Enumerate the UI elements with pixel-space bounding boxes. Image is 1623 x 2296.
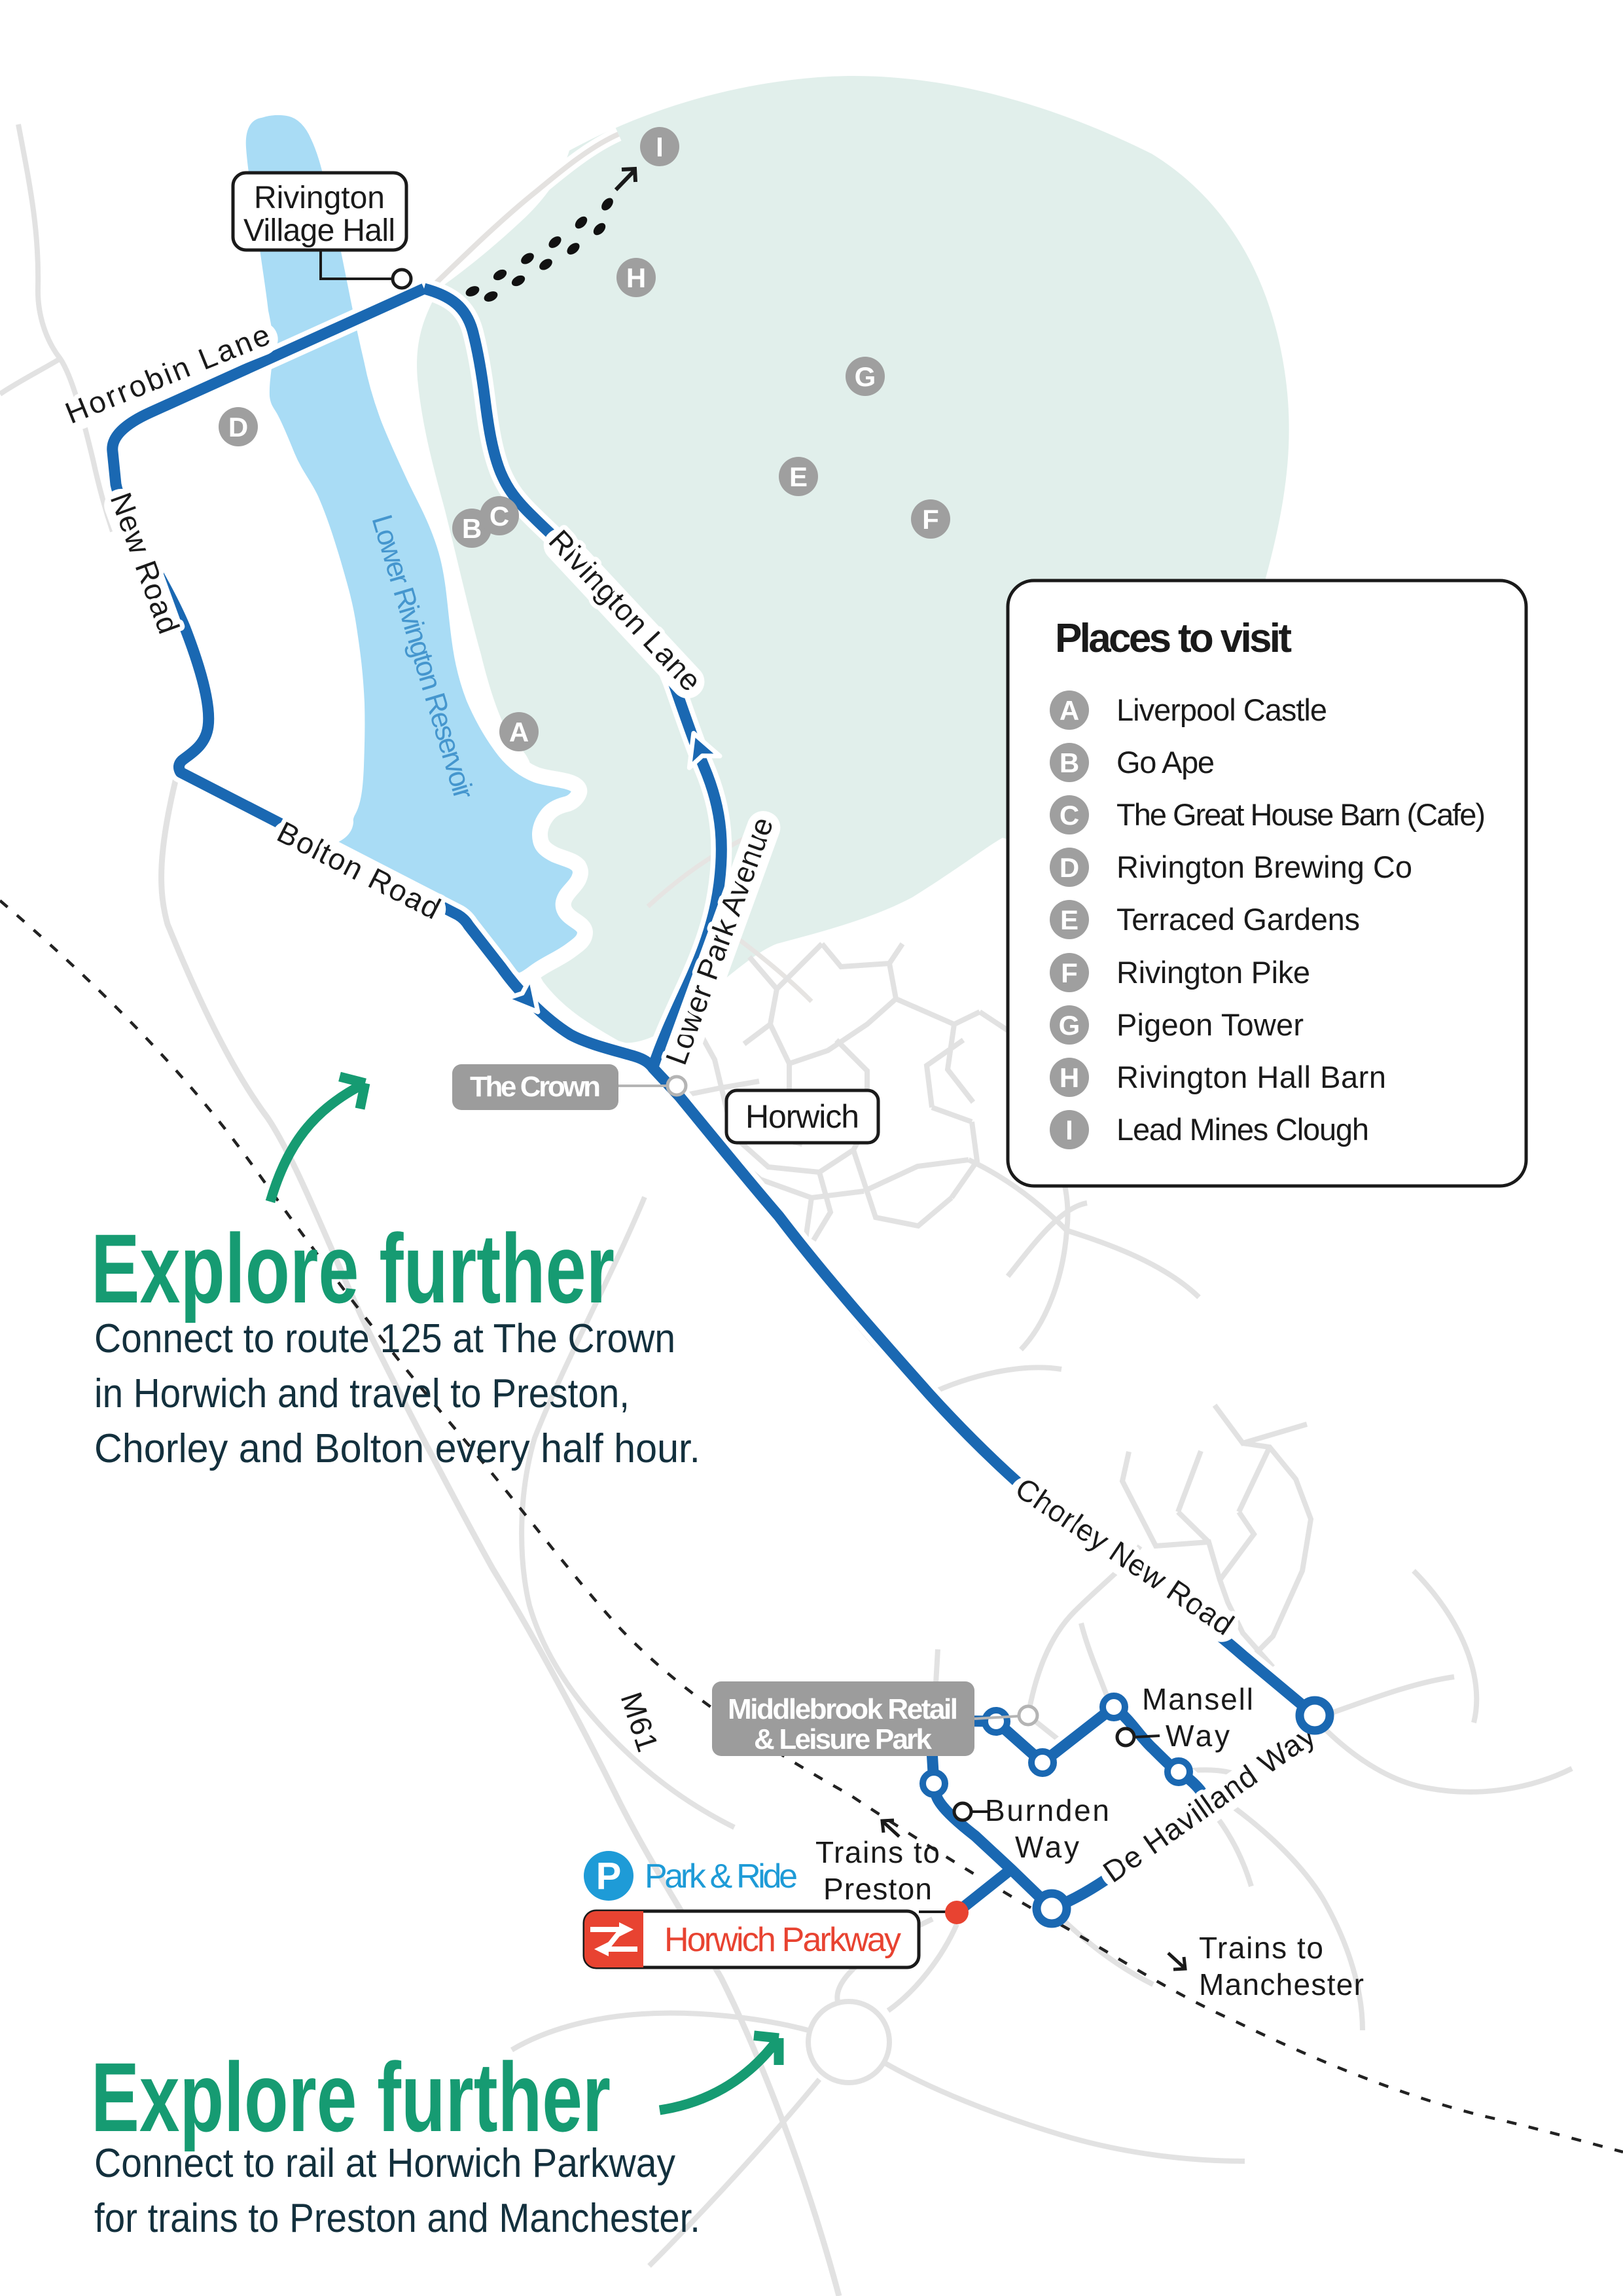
svg-text:The Crown: The Crown: [470, 1071, 601, 1103]
svg-text:C: C: [1060, 800, 1079, 831]
svg-text:Horwich: Horwich: [745, 1098, 859, 1135]
svg-text:Manchester: Manchester: [1199, 1967, 1364, 2001]
svg-text:Park & Ride: Park & Ride: [645, 1857, 798, 1895]
svg-text:H: H: [1060, 1062, 1079, 1093]
svg-text:Preston: Preston: [823, 1872, 932, 1906]
svg-text:C: C: [490, 501, 509, 531]
svg-text:B: B: [1060, 747, 1079, 778]
svg-text:Rivington Pike: Rivington Pike: [1116, 955, 1310, 990]
svg-text:P: P: [596, 1855, 622, 1897]
svg-text:F: F: [1061, 958, 1078, 988]
svg-text:E: E: [1060, 905, 1079, 935]
svg-text:D: D: [1060, 852, 1079, 883]
svg-text:Rivington Hall Barn: Rivington Hall Barn: [1116, 1060, 1386, 1094]
svg-text:Go Ape: Go Ape: [1116, 745, 1215, 780]
svg-text:Middlebrook Retail: Middlebrook Retail: [728, 1693, 958, 1725]
svg-text:Burnden: Burnden: [985, 1793, 1109, 1827]
svg-text:Explore further: Explore further: [91, 2042, 611, 2152]
svg-text:Way: Way: [1166, 1719, 1230, 1753]
svg-text:I: I: [656, 132, 664, 162]
svg-text:A: A: [509, 717, 529, 747]
svg-text:A: A: [1060, 695, 1079, 726]
svg-text:for trains to Preston and Manc: for trains to Preston and Manchester.: [94, 2196, 700, 2241]
svg-text:Horwich Parkway: Horwich Parkway: [664, 1921, 901, 1959]
svg-text:Terraced Gardens: Terraced Gardens: [1116, 902, 1360, 937]
svg-text:Trains to: Trains to: [1199, 1931, 1323, 1965]
svg-text:G: G: [1059, 1010, 1080, 1041]
svg-text:Trains to: Trains to: [815, 1835, 940, 1869]
svg-text:Rivington: Rivington: [254, 181, 385, 215]
svg-text:F: F: [922, 504, 939, 535]
svg-text:Pigeon Tower: Pigeon Tower: [1116, 1007, 1304, 1042]
svg-text:E: E: [789, 461, 808, 492]
svg-text:Village Hall: Village Hall: [243, 213, 395, 248]
svg-text:I: I: [1065, 1115, 1073, 1145]
svg-text:Way: Way: [1015, 1830, 1079, 1864]
svg-text:Liverpool Castle: Liverpool Castle: [1116, 692, 1327, 727]
svg-text:G: G: [855, 361, 876, 392]
svg-text:D: D: [228, 412, 248, 442]
svg-text:Explore further: Explore further: [91, 1213, 615, 1323]
svg-text:& Leisure Park: & Leisure Park: [754, 1723, 933, 1755]
svg-text:Connect to rail at Horwich Par: Connect to rail at Horwich Parkway: [94, 2141, 675, 2186]
svg-text:H: H: [626, 262, 646, 293]
svg-text:Mansell: Mansell: [1142, 1682, 1253, 1716]
svg-text:Connect to route 125 at The Cr: Connect to route 125 at The Crown: [94, 1316, 675, 1361]
svg-text:The Great House Barn (Cafe): The Great House Barn (Cafe): [1116, 797, 1486, 832]
svg-text:Rivington Brewing Co: Rivington Brewing Co: [1116, 850, 1412, 884]
svg-text:in Horwich and travel to Prest: in Horwich and travel to Preston,: [94, 1371, 630, 1416]
svg-text:Chorley and Bolton every half: Chorley and Bolton every half hour.: [94, 1426, 700, 1471]
svg-text:B: B: [462, 513, 482, 544]
svg-text:Places to visit: Places to visit: [1055, 616, 1292, 661]
svg-text:Lead Mines Clough: Lead Mines Clough: [1116, 1112, 1369, 1147]
